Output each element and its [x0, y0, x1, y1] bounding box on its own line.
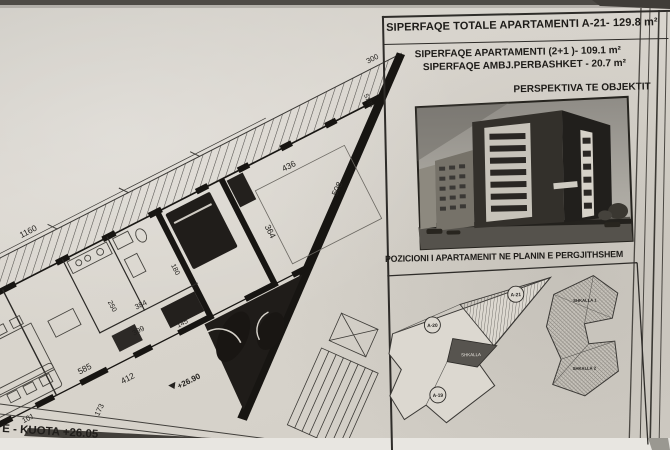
dim-1160: 1160 — [18, 223, 39, 240]
dim-180: 180 — [169, 263, 181, 277]
dim-364: 364 — [263, 223, 278, 240]
unit-label-a20: A-20 — [427, 323, 438, 329]
living-furniture — [0, 292, 102, 424]
stair1-label: SHKALLA 1 — [573, 298, 597, 304]
unit-label-a19: A-19 — [433, 393, 444, 399]
dim-436: 436 — [280, 158, 297, 173]
info-panel: SIPERFAQE TOTALE APARTAMENTI A-21- 129.8… — [370, 0, 670, 450]
dim-173: 173 — [92, 402, 106, 417]
perspective-heading: PERSPEKTIVA TE OBJEKTIT — [513, 81, 650, 95]
title-underline — [383, 38, 669, 45]
dim-250: 250 — [106, 300, 118, 314]
shared-area-line: SIPERFAQE AMBJ.PERBASHKET - 20.7 m² — [423, 58, 626, 73]
dim-level: +26.90 — [176, 371, 203, 390]
dim-412: 412 — [119, 370, 136, 385]
stair-label: SHKALLA — [461, 352, 481, 357]
dim-585: 585 — [76, 361, 93, 376]
unit-label-a21: A-21 — [511, 292, 522, 298]
scanned-architectural-sheet: 1160 300 5185 436 364 508 585 399 384 25… — [0, 0, 670, 450]
stair2-label: SHKALLA 2 — [573, 366, 597, 372]
stair-core — [194, 271, 345, 412]
balcony-strip — [0, 54, 415, 328]
footprint-right-building — [545, 275, 619, 396]
total-area-title: SIPERFAQE TOTALE APARTAMENTI A-21- 129.8… — [386, 16, 656, 34]
